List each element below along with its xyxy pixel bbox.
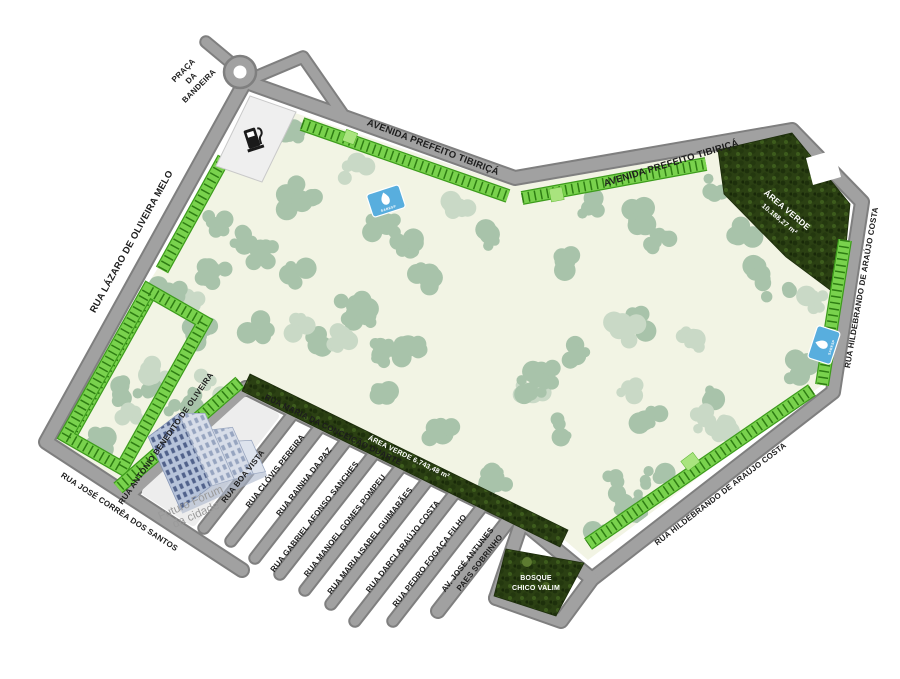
strip-gap [549, 187, 564, 202]
svg-text:BOSQUE: BOSQUE [520, 575, 552, 582]
svg-text:CHICO VALIM: CHICO VALIM [512, 585, 560, 592]
praca-da-bandeira-label: PRAÇA DA BANDEIRA [165, 52, 218, 105]
roundabout [224, 56, 256, 88]
map-canvas: Futuro Fórum da cidade SABESP SABESP PRA… [0, 0, 900, 679]
